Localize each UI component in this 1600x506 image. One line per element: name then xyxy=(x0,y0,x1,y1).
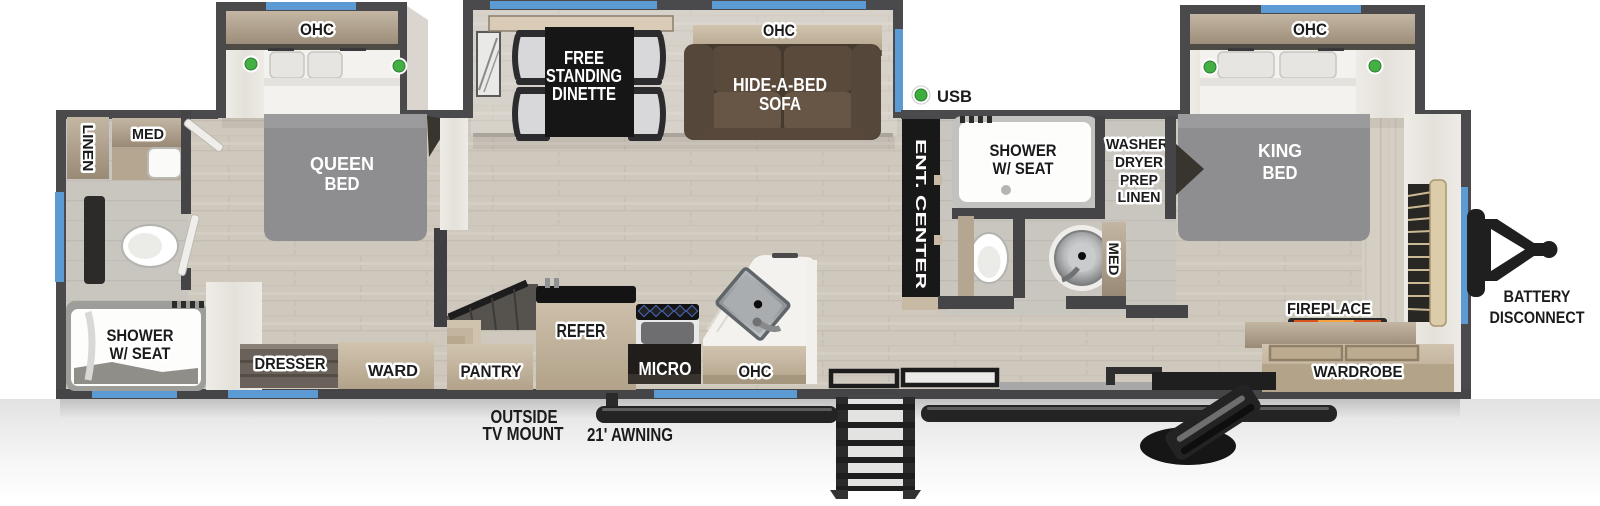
svg-text:DINETTE: DINETTE xyxy=(552,84,616,104)
svg-text:PREP: PREP xyxy=(1120,172,1158,189)
svg-text:DRYER: DRYER xyxy=(1115,154,1163,171)
svg-text:OHC: OHC xyxy=(1293,20,1327,39)
svg-text:SOFA: SOFA xyxy=(759,94,801,114)
svg-text:MICRO: MICRO xyxy=(639,359,692,379)
svg-text:W/ SEAT: W/ SEAT xyxy=(993,159,1055,178)
svg-text:SHOWER: SHOWER xyxy=(107,326,174,345)
svg-text:FREE: FREE xyxy=(564,48,604,68)
svg-text:REFER: REFER xyxy=(557,321,606,341)
svg-text:DRESSER: DRESSER xyxy=(255,356,326,373)
svg-text:USB: USB xyxy=(937,87,972,106)
svg-text:SHOWER: SHOWER xyxy=(990,141,1057,160)
svg-text:QUEEN: QUEEN xyxy=(310,153,374,174)
svg-text:WARD: WARD xyxy=(368,363,418,380)
svg-text:WASHER/: WASHER/ xyxy=(1106,136,1173,153)
svg-text:BATTERY: BATTERY xyxy=(1504,287,1572,306)
svg-text:DISCONNECT: DISCONNECT xyxy=(1490,308,1586,327)
svg-text:MED: MED xyxy=(1106,243,1122,276)
svg-text:BED: BED xyxy=(1263,162,1298,183)
svg-text:LINEN: LINEN xyxy=(79,125,96,172)
svg-text:MED: MED xyxy=(132,126,164,143)
svg-text:BED: BED xyxy=(325,173,360,194)
svg-text:STANDING: STANDING xyxy=(546,66,622,86)
svg-text:OHC: OHC xyxy=(739,362,772,381)
svg-text:OHC: OHC xyxy=(763,21,795,40)
svg-text:PANTRY: PANTRY xyxy=(461,363,522,381)
svg-text:TV MOUNT: TV MOUNT xyxy=(483,424,564,444)
svg-text:WARDROBE: WARDROBE xyxy=(1314,364,1403,381)
svg-text:FIREPLACE: FIREPLACE xyxy=(1287,301,1371,318)
svg-text:KING: KING xyxy=(1258,140,1302,161)
svg-text:OHC: OHC xyxy=(300,20,334,39)
svg-text:LINEN: LINEN xyxy=(1118,189,1161,206)
svg-text:21' AWNING: 21' AWNING xyxy=(587,425,673,445)
svg-text:W/ SEAT: W/ SEAT xyxy=(110,344,172,363)
svg-text:ENT. CENTER: ENT. CENTER xyxy=(912,139,929,289)
svg-text:HIDE-A-BED: HIDE-A-BED xyxy=(733,75,827,95)
